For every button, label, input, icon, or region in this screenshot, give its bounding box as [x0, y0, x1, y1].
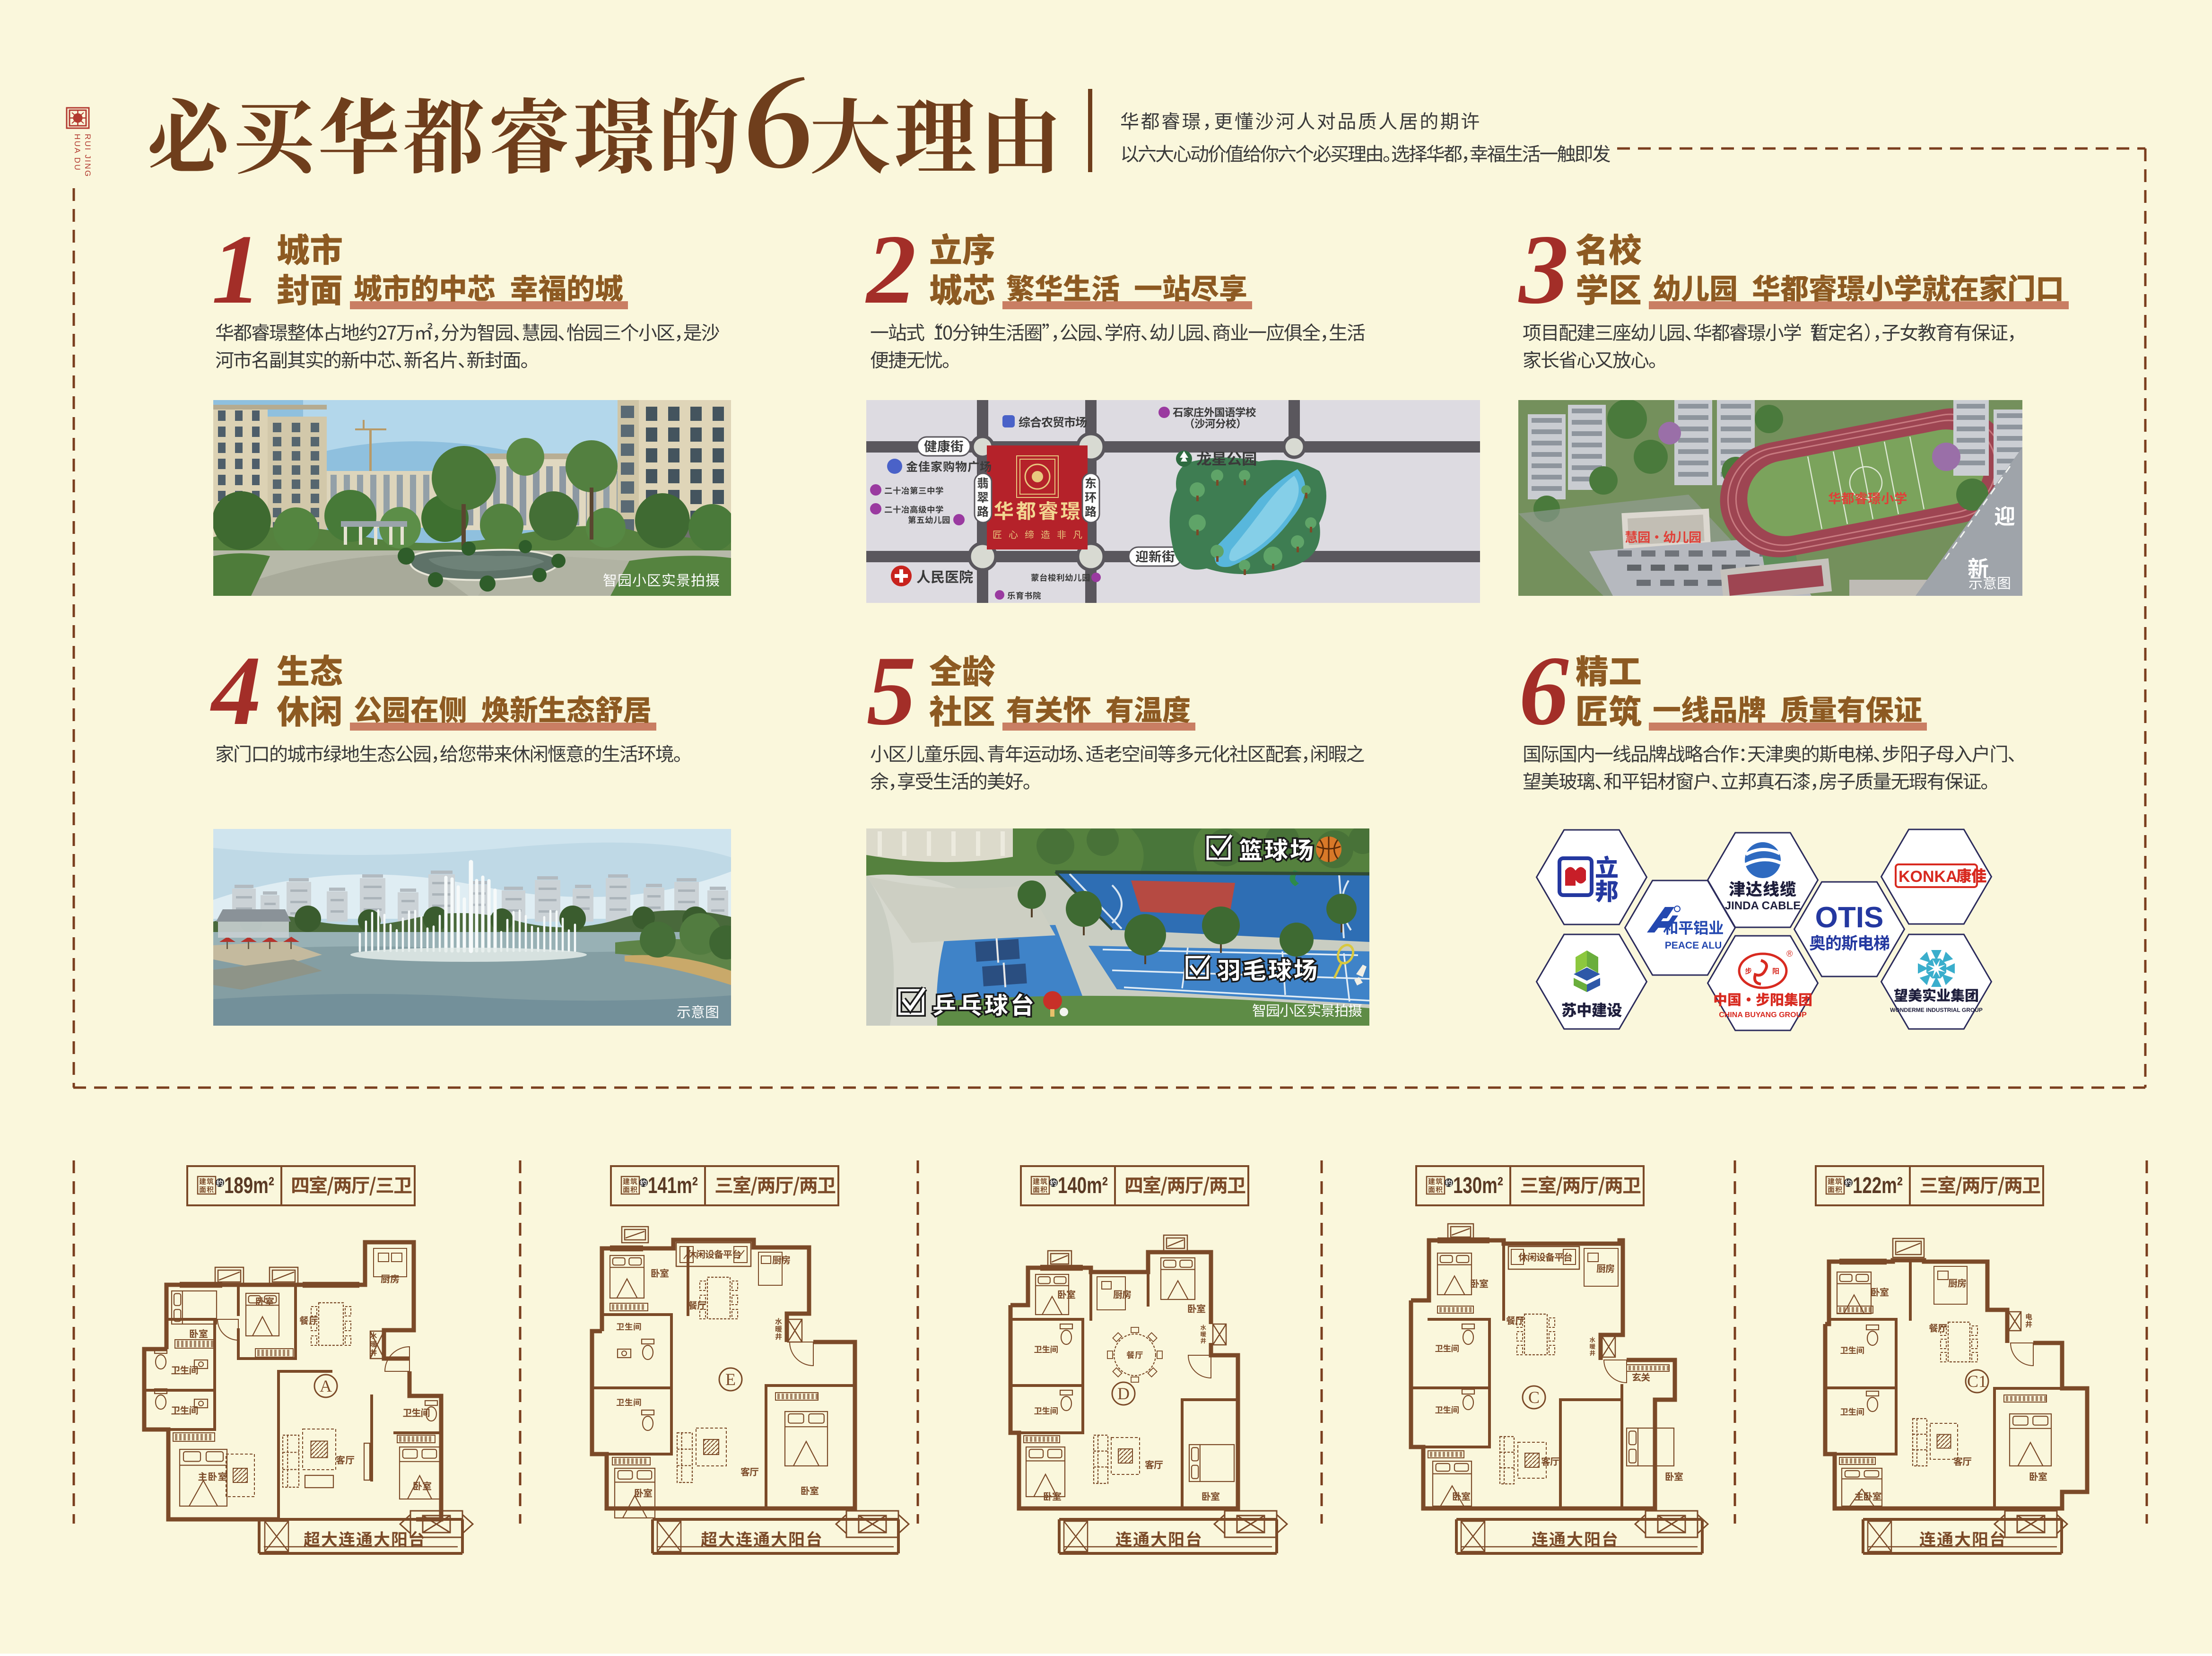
svg-text:1: 1: [212, 215, 261, 324]
svg-text:D: D: [1117, 1384, 1130, 1403]
svg-text:HUA DU: HUA DU: [73, 134, 82, 171]
svg-text:6: 6: [1519, 636, 1569, 746]
svg-text:130m²: 130m²: [1453, 1173, 1503, 1198]
svg-text:122m²: 122m²: [1853, 1173, 1903, 1198]
svg-text:RUI JING: RUI JING: [83, 134, 92, 178]
svg-text:189m²: 189m²: [224, 1173, 274, 1198]
svg-text:3: 3: [1518, 215, 1569, 324]
svg-text:WONDERME INDUSTRIAL GROUP: WONDERME INDUSTRIAL GROUP: [1890, 1007, 1983, 1013]
svg-text:E: E: [725, 1370, 736, 1389]
svg-text:2: 2: [865, 215, 916, 324]
svg-text:141m²: 141m²: [648, 1173, 698, 1198]
svg-text:C: C: [1528, 1388, 1540, 1407]
svg-text:PEACE ALU: PEACE ALU: [1665, 940, 1722, 951]
svg-text:OTIS: OTIS: [1815, 901, 1884, 934]
svg-text:CHINA BUYANG GROUP: CHINA BUYANG GROUP: [1719, 1011, 1807, 1019]
svg-text:JINDA CABLE: JINDA CABLE: [1725, 899, 1801, 912]
svg-text:5: 5: [867, 636, 916, 746]
svg-text:C1: C1: [1967, 1372, 1987, 1391]
svg-text:140m²: 140m²: [1058, 1173, 1108, 1198]
svg-text:A: A: [320, 1377, 332, 1395]
svg-text:KONKA: KONKA: [1898, 868, 1958, 886]
svg-text:4: 4: [210, 636, 261, 746]
svg-text:®: ®: [1786, 949, 1793, 959]
